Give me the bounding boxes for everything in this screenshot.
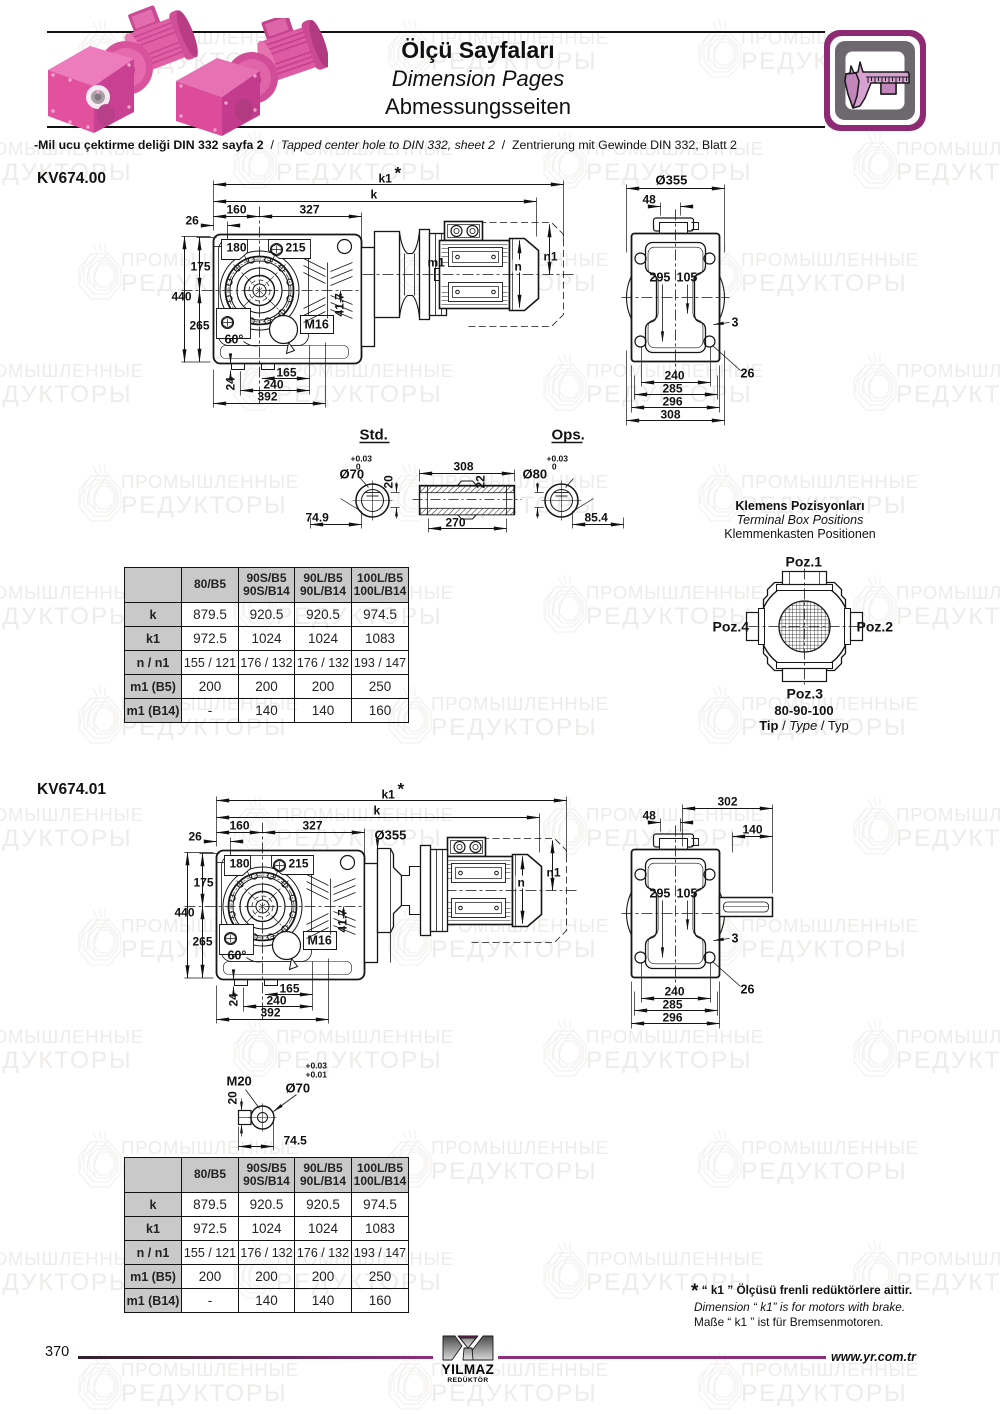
svg-text:Ø80: Ø80 <box>523 467 548 482</box>
svg-text:Poz.4: Poz.4 <box>713 619 750 635</box>
svg-text:YILMAZ: YILMAZ <box>442 1362 495 1377</box>
svg-text:85.4: 85.4 <box>585 511 609 525</box>
svg-text:308: 308 <box>454 460 474 474</box>
svg-text:Std.: Std. <box>360 427 388 444</box>
svg-text:74.9: 74.9 <box>306 511 330 525</box>
svg-text:Poz.3: Poz.3 <box>787 686 824 702</box>
svg-text:Ø355: Ø355 <box>375 828 407 843</box>
svg-text:270: 270 <box>446 516 466 530</box>
svg-text:20: 20 <box>226 1091 240 1105</box>
svg-text:Poz.1: Poz.1 <box>786 554 823 570</box>
svg-text:74.5: 74.5 <box>284 1134 308 1148</box>
svg-text:+0.01: +0.01 <box>306 1070 328 1080</box>
svg-text:0: 0 <box>550 462 557 472</box>
svg-text:308: 308 <box>661 408 681 422</box>
svg-text:140: 140 <box>743 823 763 837</box>
svg-text:REDÜKTÖR: REDÜKTÖR <box>447 1375 488 1384</box>
svg-text:Ø355: Ø355 <box>656 173 688 188</box>
svg-text:Ops.: Ops. <box>552 427 585 444</box>
svg-text:Poz.2: Poz.2 <box>857 619 894 635</box>
svg-text:M20: M20 <box>227 1074 252 1089</box>
svg-text:Ø70: Ø70 <box>286 1081 311 1096</box>
svg-text:22: 22 <box>474 475 488 489</box>
svg-text:302: 302 <box>718 795 738 809</box>
svg-text:0: 0 <box>354 462 361 472</box>
svg-text:20: 20 <box>382 475 396 489</box>
